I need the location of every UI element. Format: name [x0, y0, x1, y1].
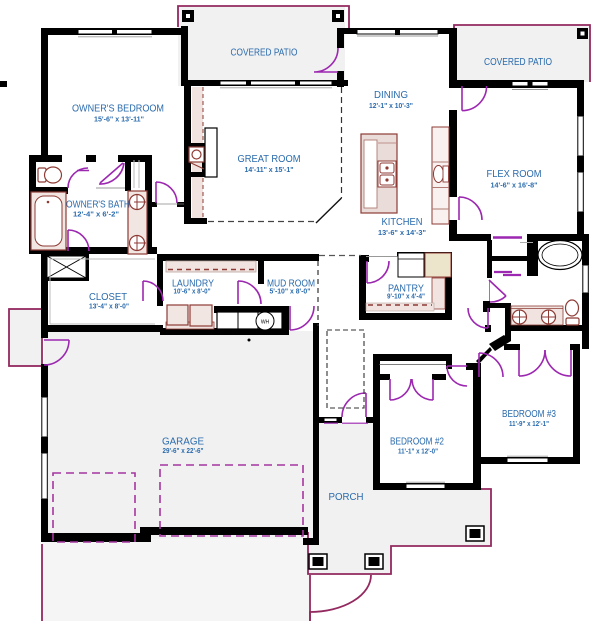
svg-text:12'-4" x 6'-2": 12'-4" x 6'-2" — [73, 210, 119, 219]
svg-text:29'-6" x 22'-6": 29'-6" x 22'-6" — [163, 446, 204, 455]
svg-text:12'-1" x 10'-3": 12'-1" x 10'-3" — [369, 101, 413, 110]
svg-text:15'-6" x 13'-11": 15'-6" x 13'-11" — [94, 115, 144, 124]
svg-text:14'-11" x 15'-1": 14'-11" x 15'-1" — [245, 165, 294, 174]
svg-text:PORCH: PORCH — [329, 492, 364, 503]
svg-text:10'-6" x 8'-0": 10'-6" x 8'-0" — [174, 287, 211, 296]
svg-text:COVERED PATIO: COVERED PATIO — [484, 57, 552, 68]
svg-text:11'-9" x 12'-1": 11'-9" x 12'-1" — [509, 419, 549, 428]
svg-text:11'-1" x 12'-0": 11'-1" x 12'-0" — [398, 447, 438, 456]
svg-text:KITCHEN: KITCHEN — [382, 217, 423, 228]
svg-text:DINING: DINING — [374, 90, 408, 101]
svg-text:OWNER'S BEDROOM: OWNER'S BEDROOM — [72, 104, 164, 115]
svg-text:GREAT ROOM: GREAT ROOM — [238, 154, 301, 165]
svg-text:WH: WH — [261, 320, 270, 326]
svg-text:COVERED PATIO: COVERED PATIO — [231, 48, 298, 59]
svg-text:13'-4" x 8'-0": 13'-4" x 8'-0" — [89, 302, 129, 311]
svg-text:5'-10" x 8'-0": 5'-10" x 8'-0" — [270, 287, 311, 296]
svg-text:13'-6" x 14'-3": 13'-6" x 14'-3" — [378, 228, 426, 237]
svg-text:9'-10" x 4'-4": 9'-10" x 4'-4" — [387, 292, 425, 301]
svg-text:FLEX ROOM: FLEX ROOM — [487, 169, 542, 180]
svg-text:14'-6" x 16'-8": 14'-6" x 16'-8" — [491, 181, 538, 190]
